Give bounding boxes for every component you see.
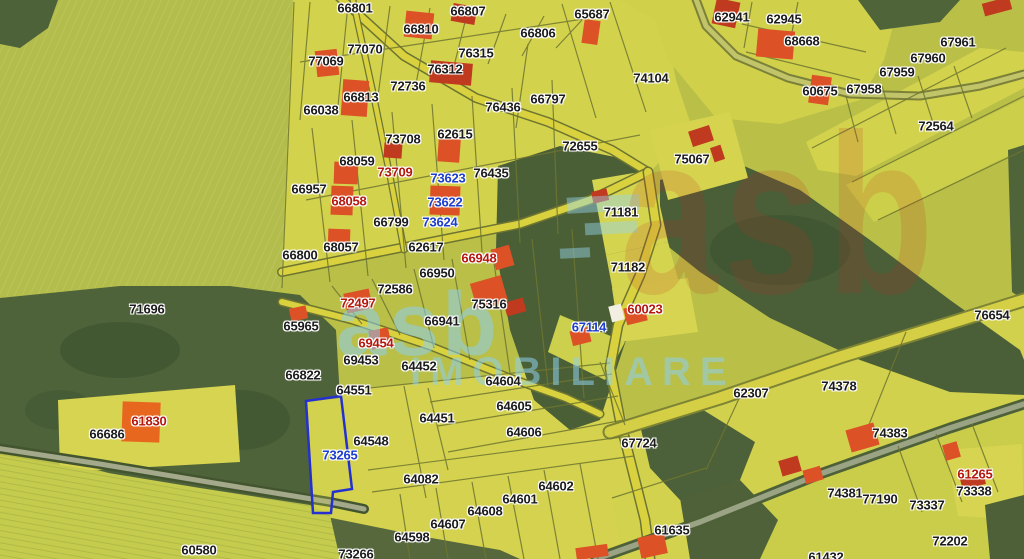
parcel-label-69454[interactable]: 69454 (358, 336, 393, 351)
parcel-label-73709[interactable]: 73709 (377, 165, 412, 180)
parcel-label-61265[interactable]: 61265 (957, 467, 992, 482)
parcel-label-64551[interactable]: 64551 (336, 383, 371, 398)
parcel-label-76435[interactable]: 76435 (473, 166, 508, 181)
parcel-label-68058[interactable]: 68058 (331, 194, 366, 209)
parcel-label-73624[interactable]: 73624 (422, 215, 457, 230)
parcel-label-72202[interactable]: 72202 (932, 534, 967, 549)
parcel-label-64451[interactable]: 64451 (419, 411, 454, 426)
parcel-label-66801[interactable]: 66801 (337, 1, 372, 16)
parcel-label-74383[interactable]: 74383 (872, 426, 907, 441)
parcel-label-73265[interactable]: 73265 (322, 448, 357, 463)
parcel-label-66807[interactable]: 66807 (450, 4, 485, 19)
parcel-label-72497[interactable]: 72497 (340, 296, 375, 311)
parcel-label-76436[interactable]: 76436 (485, 100, 520, 115)
parcel-label-64607[interactable]: 64607 (430, 517, 465, 532)
parcel-label-66810[interactable]: 66810 (403, 22, 438, 37)
parcel-label-65687[interactable]: 65687 (574, 7, 609, 22)
parcel-label-75067[interactable]: 75067 (674, 152, 709, 167)
parcel-label-66941[interactable]: 66941 (424, 314, 459, 329)
parcel-label-72586[interactable]: 72586 (377, 282, 412, 297)
parcel-label-67959[interactable]: 67959 (879, 65, 914, 80)
parcel-label-77070[interactable]: 77070 (347, 42, 382, 57)
parcel-label-73337[interactable]: 73337 (909, 498, 944, 513)
parcel-label-60580[interactable]: 60580 (181, 543, 216, 558)
parcel-label-68057[interactable]: 68057 (323, 240, 358, 255)
parcel-label-64608[interactable]: 64608 (467, 504, 502, 519)
parcel-label-61635[interactable]: 61635 (654, 523, 689, 538)
parcel-label-62307[interactable]: 62307 (733, 386, 768, 401)
parcel-label-66800[interactable]: 66800 (282, 248, 317, 263)
parcel-label-71181[interactable]: 71181 (604, 205, 638, 220)
parcel-label-71696[interactable]: 71696 (129, 302, 164, 317)
parcel-label-67724[interactable]: 67724 (621, 436, 656, 451)
parcel-label-73708[interactable]: 73708 (385, 132, 420, 147)
parcel-label-75316[interactable]: 75316 (471, 297, 506, 312)
parcel-label-76312[interactable]: 76312 (427, 62, 462, 77)
parcel-label-66822[interactable]: 66822 (285, 368, 320, 383)
parcel-label-62941[interactable]: 62941 (714, 10, 749, 25)
parcel-label-67958[interactable]: 67958 (846, 82, 881, 97)
parcel-label-68059[interactable]: 68059 (339, 154, 374, 169)
parcel-label-64602[interactable]: 64602 (538, 479, 573, 494)
parcel-label-76315[interactable]: 76315 (458, 46, 493, 61)
parcel-label-74104[interactable]: 74104 (633, 71, 668, 86)
parcel-label-66806[interactable]: 66806 (520, 26, 555, 41)
parcel-label-71182[interactable]: 71182 (611, 260, 645, 275)
parcel-label-62617[interactable]: 62617 (408, 240, 443, 255)
parcel-label-73622[interactable]: 73622 (427, 195, 462, 210)
parcel-label-66799[interactable]: 66799 (373, 215, 408, 230)
parcel-label-64605[interactable]: 64605 (496, 399, 531, 414)
parcel-label-72736[interactable]: 72736 (390, 79, 425, 94)
parcel-label-72564[interactable]: 72564 (918, 119, 953, 134)
parcel-label-64601[interactable]: 64601 (502, 492, 537, 507)
parcel-label-60675[interactable]: 60675 (802, 84, 837, 99)
parcel-label-67960[interactable]: 67960 (910, 51, 945, 66)
parcel-label-60023[interactable]: 60023 (627, 302, 662, 317)
parcel-label-73266[interactable]: 73266 (338, 547, 373, 559)
parcel-label-62615[interactable]: 62615 (437, 127, 472, 142)
parcel-label-67114[interactable]: 67114 (572, 320, 606, 335)
parcel-label-64548[interactable]: 64548 (353, 434, 388, 449)
parcel-label-66950[interactable]: 66950 (419, 266, 454, 281)
parcel-labels-layer: 6680166807656876294162945668106680667961… (0, 0, 1024, 559)
parcel-label-64452[interactable]: 64452 (401, 359, 436, 374)
parcel-label-66797[interactable]: 66797 (530, 92, 565, 107)
parcel-label-66813[interactable]: 66813 (343, 90, 378, 105)
parcel-label-62945[interactable]: 62945 (766, 12, 801, 27)
parcel-label-66957[interactable]: 66957 (291, 182, 326, 197)
parcel-label-77069[interactable]: 77069 (308, 54, 343, 69)
parcel-label-67961[interactable]: 67961 (940, 35, 975, 50)
parcel-label-74381[interactable]: 74381 (827, 486, 862, 501)
parcel-label-61830[interactable]: 61830 (131, 414, 166, 429)
parcel-label-64082[interactable]: 64082 (403, 472, 438, 487)
parcel-label-65965[interactable]: 65965 (283, 319, 318, 334)
parcel-label-64606[interactable]: 64606 (506, 425, 541, 440)
parcel-label-69453[interactable]: 69453 (343, 353, 378, 368)
parcel-label-66948[interactable]: 66948 (461, 251, 496, 266)
parcel-label-61432[interactable]: 61432 (808, 550, 843, 559)
parcel-label-74378[interactable]: 74378 (821, 379, 856, 394)
parcel-label-77190[interactable]: 77190 (862, 492, 897, 507)
parcel-label-76654[interactable]: 76654 (974, 308, 1009, 323)
parcel-label-73623[interactable]: 73623 (430, 171, 465, 186)
parcel-label-68668[interactable]: 68668 (784, 34, 819, 49)
parcel-label-66038[interactable]: 66038 (303, 103, 338, 118)
parcel-label-72655[interactable]: 72655 (562, 139, 597, 154)
parcel-label-66686[interactable]: 66686 (89, 427, 124, 442)
parcel-label-64598[interactable]: 64598 (394, 530, 429, 545)
parcel-label-73338[interactable]: 73338 (956, 484, 991, 499)
parcel-label-64604[interactable]: 64604 (485, 374, 520, 389)
cadastral-map[interactable]: asb asb IMOBILIARE 668016680765687629416… (0, 0, 1024, 559)
